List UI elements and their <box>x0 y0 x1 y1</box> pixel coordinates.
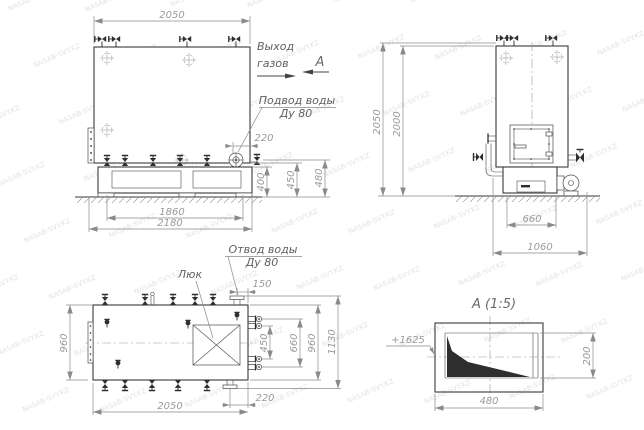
dim-text: 400 <box>256 172 267 191</box>
elevation-label: +1625 <box>391 335 425 346</box>
dim-text: 660 <box>522 214 541 225</box>
water-inlet-label-2: Ду 80 <box>279 107 313 120</box>
detail-title: А (1:5) <box>471 297 516 312</box>
plan-left-flange <box>88 322 93 363</box>
hatch-plate <box>193 325 240 365</box>
dim-text: 450 <box>286 170 297 189</box>
ground-side <box>455 196 600 202</box>
support-frame <box>98 167 252 197</box>
dim-text: 450 <box>259 333 270 352</box>
furnace-box <box>503 167 557 193</box>
water-inlet-label-1: Подвод воды <box>259 94 336 107</box>
dim-text: 2050 <box>157 401 182 412</box>
view-a-label: А <box>315 55 325 70</box>
boiler-body-front <box>94 47 250 163</box>
front-left-flange <box>88 128 94 163</box>
dim-text: 220 <box>254 133 273 144</box>
gas-exit-label-2: газов <box>257 57 289 70</box>
dim-text: 200 <box>582 346 593 365</box>
dim-text: 960 <box>307 333 318 352</box>
drawing-canvas: NASAB-SVY.KZ NASAB-SVY.KZ <box>0 0 644 430</box>
boiler-drawing: NASAB-SVY.KZ NASAB-SVY.KZ <box>0 0 644 430</box>
dim-text: 150 <box>252 279 271 290</box>
dim-text: 960 <box>59 333 70 352</box>
dim-text: 660 <box>289 333 300 352</box>
dim-text: 1130 <box>327 329 338 354</box>
ground-front <box>75 197 262 203</box>
dim-text: 2050 <box>159 10 184 21</box>
water-outlet-label-2: Ду 80 <box>245 256 279 269</box>
dim-text: 2000 <box>392 111 403 136</box>
door-handle <box>515 145 526 148</box>
dim-text: 2180 <box>157 218 182 229</box>
access-door <box>510 125 553 163</box>
dim-text: 480 <box>479 396 498 407</box>
dim-text: 1860 <box>159 207 184 218</box>
hatch-label: Люк <box>177 268 203 281</box>
gas-exit-label-1: Выход <box>257 40 294 53</box>
dim-text: 1060 <box>527 242 552 253</box>
dim-text: 220 <box>255 393 274 404</box>
dim-text: 480 <box>314 168 325 187</box>
water-outlet-label-1: Отвод воды <box>229 243 298 256</box>
water-inlet-flange <box>229 153 243 167</box>
dim-text: 2050 <box>372 109 383 134</box>
